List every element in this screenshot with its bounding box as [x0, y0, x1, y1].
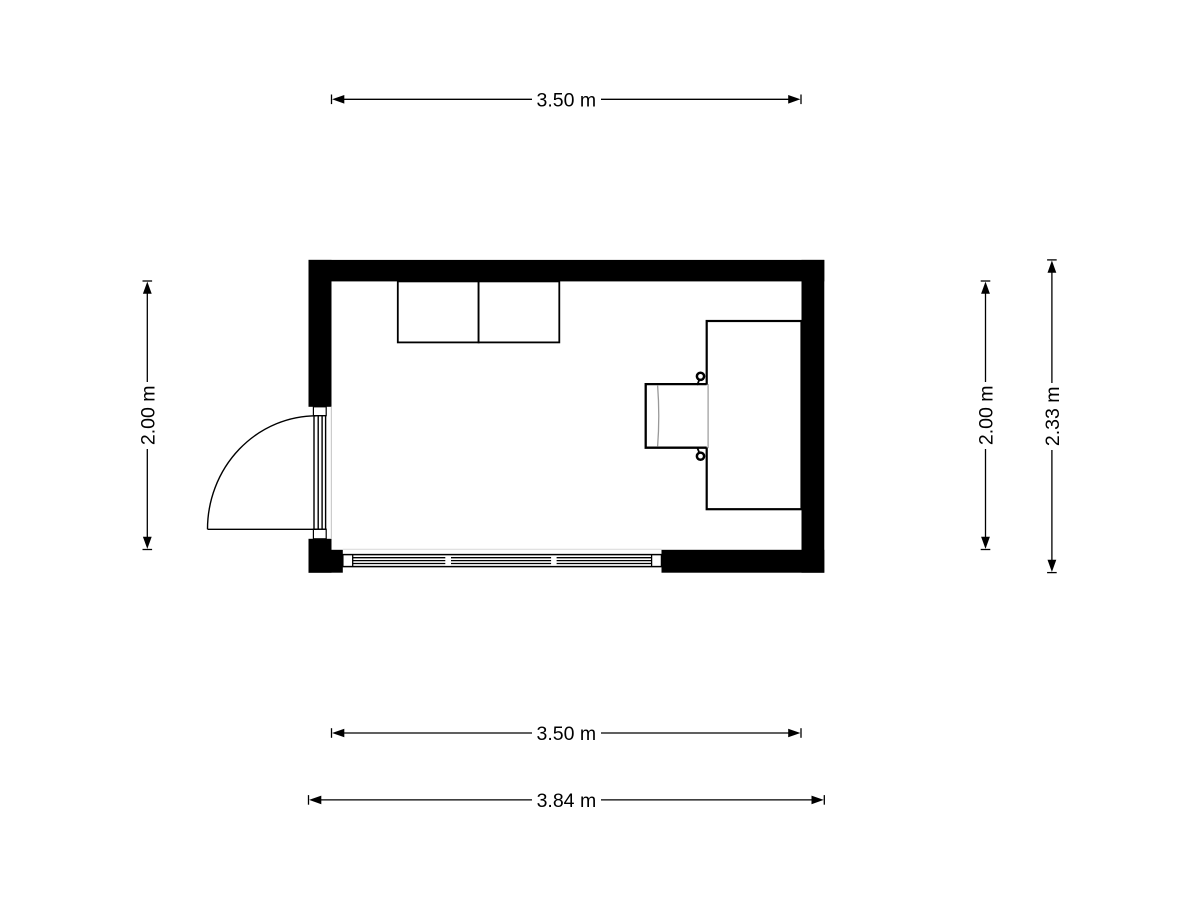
svg-text:2.00 m: 2.00 m [976, 385, 998, 445]
svg-text:2.00 m: 2.00 m [137, 385, 159, 445]
svg-text:2.33 m: 2.33 m [1042, 386, 1064, 446]
svg-text:3.84 m: 3.84 m [537, 790, 597, 812]
svg-text:3.50 m: 3.50 m [536, 89, 596, 111]
svg-text:3.50 m: 3.50 m [536, 723, 596, 745]
